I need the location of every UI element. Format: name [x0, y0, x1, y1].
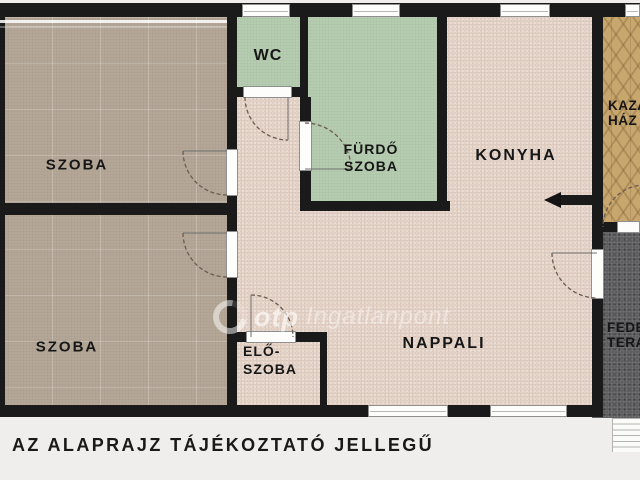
caption-text: AZ ALAPRAJZ TÁJÉKOZTATÓ JELLEGŰ	[12, 435, 434, 456]
label-living-room: NAPPALI	[402, 335, 485, 353]
label-boiler-house: KAZÁN HÁZ	[608, 98, 640, 128]
label-bathroom: FÜRDŐ SZOBA	[344, 141, 399, 175]
label-boiler-line2: HÁZ	[608, 113, 640, 128]
label-bedroom-2: SZOBA	[36, 339, 99, 356]
label-wc: WC	[254, 47, 283, 65]
label-entryhall-line2: SZOBA	[243, 360, 297, 378]
wall-bedroom-divider	[0, 203, 237, 215]
wall-bathroom-bottom	[300, 201, 450, 211]
label-entryhall: ELŐ- SZOBA	[243, 342, 297, 378]
floor-plan-image: otp Ingatlanpont SZOBA SZOBA WC FÜRDŐ SZ…	[0, 0, 640, 480]
label-terrace-line2: TERASZ	[607, 335, 640, 350]
label-kitchen: KONYHA	[475, 147, 556, 165]
label-boiler-line1: KAZÁN	[608, 98, 640, 113]
watermark-brand: otp	[254, 302, 299, 333]
label-entryhall-line1: ELŐ-	[243, 342, 297, 360]
wall-wc-right	[300, 3, 308, 97]
bedroom1-window-band-2	[0, 26, 227, 28]
label-bedroom-1: SZOBA	[46, 157, 109, 174]
wall-right-main	[592, 3, 603, 405]
label-covered-terrace: FEDETT TERASZ	[607, 320, 640, 350]
door-bedroom-1	[226, 149, 238, 196]
wall-bathroom-right	[437, 3, 447, 211]
window-bathroom	[352, 4, 400, 17]
terrace-steps	[612, 418, 640, 452]
label-bathroom-line2: SZOBA	[344, 158, 399, 175]
entrance-arrow-icon	[544, 192, 561, 208]
window-wc	[242, 4, 290, 17]
door-bedroom-2	[226, 231, 238, 278]
watermark-logo-icon	[206, 293, 253, 340]
watermark-name: Ingatlanpont	[306, 303, 450, 331]
room-bedroom-1	[4, 17, 237, 215]
wall-hallway-left	[227, 3, 237, 405]
wall-entryhall-right	[320, 332, 327, 405]
door-terrace	[591, 249, 604, 299]
label-terrace-line1: FEDETT	[607, 320, 640, 335]
label-bathroom-line1: FÜRDŐ	[344, 141, 399, 158]
room-bedroom-2	[4, 203, 237, 407]
room-bathroom	[300, 17, 447, 211]
window-kitchen	[500, 4, 550, 17]
window-living-2	[490, 405, 567, 417]
wall-kitchen-stub	[558, 195, 594, 205]
window-living-1	[368, 405, 448, 417]
door-wc	[243, 86, 292, 98]
door-boiler-terrace	[617, 221, 640, 233]
watermark: otp Ingatlanpont	[213, 300, 450, 334]
window-boiler	[625, 4, 640, 17]
door-bathroom	[299, 121, 312, 171]
bedroom1-window-band	[0, 20, 227, 23]
